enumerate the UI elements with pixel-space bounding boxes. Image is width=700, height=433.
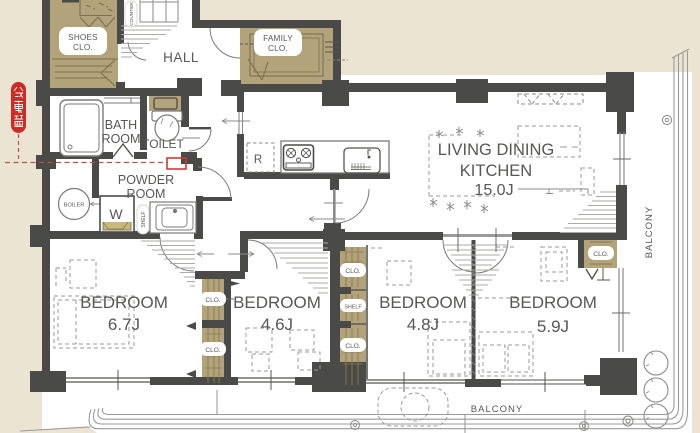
svg-text:BATH: BATH bbox=[105, 118, 137, 132]
svg-text:POWDER: POWDER bbox=[118, 173, 174, 187]
svg-text:ROOM: ROOM bbox=[127, 187, 166, 201]
svg-text:CLO.: CLO. bbox=[205, 297, 220, 304]
svg-text:4.8J: 4.8J bbox=[407, 315, 439, 334]
svg-text:BALCONY: BALCONY bbox=[644, 206, 655, 258]
svg-text:TOILET: TOILET bbox=[142, 137, 184, 151]
svg-text:W: W bbox=[109, 206, 123, 222]
svg-text:CLO.: CLO. bbox=[205, 347, 220, 354]
svg-text:5.9J: 5.9J bbox=[537, 317, 569, 336]
svg-text:ROOM: ROOM bbox=[102, 132, 141, 146]
svg-text:BEDROOM: BEDROOM bbox=[233, 293, 321, 312]
svg-text:FAMILY: FAMILY bbox=[263, 34, 293, 43]
svg-text:HALL: HALL bbox=[163, 50, 199, 65]
svg-text:CLO.: CLO. bbox=[345, 343, 360, 350]
svg-text:BOILER: BOILER bbox=[64, 203, 85, 209]
svg-text:CLO.: CLO. bbox=[593, 251, 608, 258]
svg-text:LIVING DINING: LIVING DINING bbox=[438, 141, 554, 159]
svg-text:BALCONY: BALCONY bbox=[471, 404, 523, 415]
svg-text:SHELF: SHELF bbox=[141, 211, 147, 227]
svg-text:6.7J: 6.7J bbox=[108, 315, 140, 334]
svg-text:CLO.: CLO. bbox=[73, 43, 93, 52]
svg-text:4.6J: 4.6J bbox=[261, 315, 293, 334]
svg-text:SHELF: SHELF bbox=[344, 305, 362, 311]
svg-text:COUNTER: COUNTER bbox=[129, 2, 135, 26]
svg-text:R: R bbox=[254, 154, 262, 166]
svg-text:CLO.: CLO. bbox=[345, 268, 360, 275]
svg-text:BEDROOM: BEDROOM bbox=[379, 293, 467, 312]
svg-text:BEDROOM: BEDROOM bbox=[80, 293, 168, 312]
svg-text:15.0J: 15.0J bbox=[474, 182, 513, 199]
svg-text:SHOES: SHOES bbox=[68, 33, 98, 42]
svg-text:BEDROOM: BEDROOM bbox=[509, 293, 597, 312]
svg-text:KITCHEN: KITCHEN bbox=[460, 162, 532, 180]
svg-text:CLO.: CLO. bbox=[268, 44, 288, 53]
